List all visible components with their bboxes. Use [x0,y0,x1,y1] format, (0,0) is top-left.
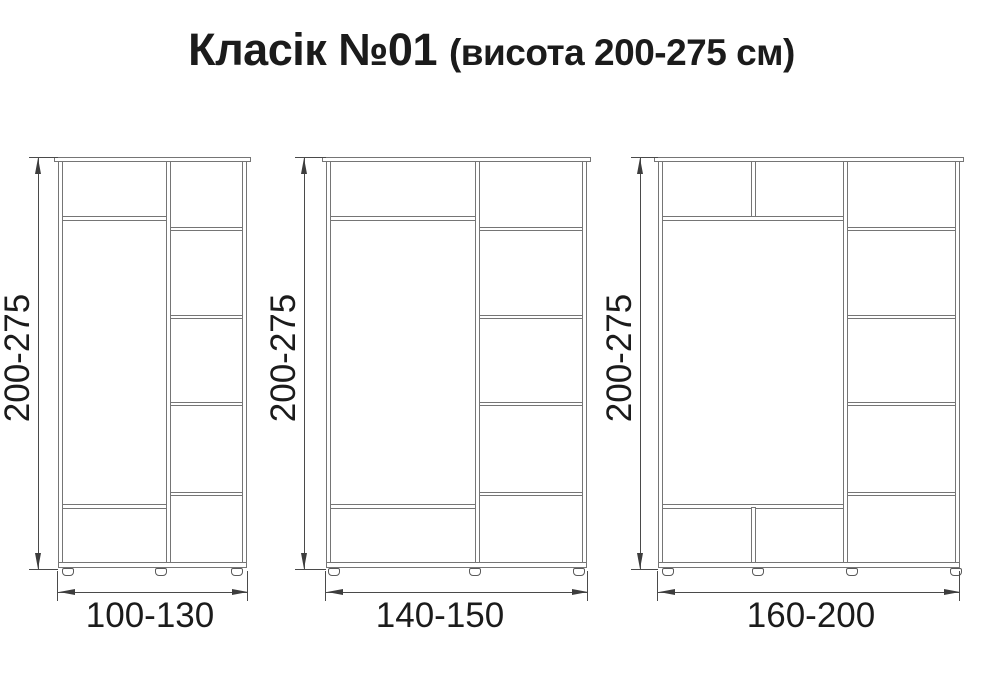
center-divider-board [166,161,171,563]
top-compartment-divider [751,161,756,221]
foot-left [62,568,74,576]
bottom-board [58,562,247,568]
right-shelf-2 [847,315,956,319]
top-board [322,157,591,162]
bottom-board [658,562,960,568]
right-shelf-4 [479,492,583,496]
right-shelf-3 [479,402,583,406]
width-dimension-label: 160-200 [691,596,931,636]
wardrobe-figure-small [58,157,247,577]
right-shelf-1 [170,227,243,231]
extension-line-right [587,571,588,601]
width-dimension-line [58,592,248,593]
extension-line-bottom [295,569,326,570]
dim-arrow-left [59,589,75,595]
top-board [654,157,964,162]
furniture-drawing-canvas: Класік №01 (висота 200-275 см) 200-275 1… [0,0,983,700]
dim-arrow-right [944,589,960,595]
right-shelf-2 [479,315,583,319]
foot-left [328,568,340,576]
width-dimension-label: 100-130 [30,596,270,636]
dim-arrow-down [301,553,307,569]
left-wall-board [58,161,63,563]
right-shelf-3 [847,402,956,406]
right-wall-board [242,161,247,563]
width-dimension-line [326,592,588,593]
wardrobe-figure-large [658,157,960,577]
foot-middle-left [752,568,764,576]
extension-line-top [295,157,326,158]
extension-line-top [29,157,58,158]
dim-arrow-down [35,553,41,569]
foot-right [950,568,962,576]
dim-arrow-up [35,158,41,174]
extension-line-left [657,571,658,601]
right-shelf-4 [847,492,956,496]
foot-middle [155,568,167,576]
bottom-compartment-divider [751,507,756,563]
height-dimension-label: 200-275 [0,238,40,478]
width-dimension-line [658,592,960,593]
center-divider-board [475,161,480,563]
left-top-shelf [330,216,476,221]
left-wall-board [326,161,331,563]
extension-line-bottom [631,569,658,570]
extension-line-right [959,571,960,601]
dim-arrow-up [637,158,643,174]
dim-arrow-down [637,553,643,569]
page-title: Класік №01 (висота 200-275 см) [0,24,983,76]
bottom-board [326,562,587,568]
right-wall-board [582,161,587,563]
title-main: Класік №01 [188,24,437,76]
right-shelf-4 [170,492,243,496]
right-shelf-1 [479,227,583,231]
dim-arrow-left [327,589,343,595]
right-shelf-3 [170,402,243,406]
left-wall-board [658,161,663,563]
center-divider-board [843,161,848,563]
left-bottom-shelf [62,504,167,509]
height-dimension-label: 200-275 [262,238,306,478]
foot-right [231,568,243,576]
wardrobe-figure-medium [326,157,587,577]
dim-arrow-up [301,158,307,174]
right-wall-board [955,161,960,563]
left-bottom-shelf [330,504,476,509]
height-dimension-label: 200-275 [598,238,642,478]
foot-left [662,568,674,576]
foot-middle [469,568,481,576]
dim-arrow-right [232,589,248,595]
left-top-shelf [62,216,167,221]
extension-line-bottom [29,569,58,570]
foot-right [573,568,585,576]
right-shelf-1 [847,227,956,231]
width-dimension-label: 140-150 [320,596,560,636]
title-sub: (висота 200-275 см) [449,32,795,74]
extension-line-top [631,157,658,158]
foot-middle-right [846,568,858,576]
dim-arrow-right [572,589,588,595]
left-top-shelf [662,216,844,221]
right-shelf-2 [170,315,243,319]
top-board [54,157,251,162]
dim-arrow-left [659,589,675,595]
